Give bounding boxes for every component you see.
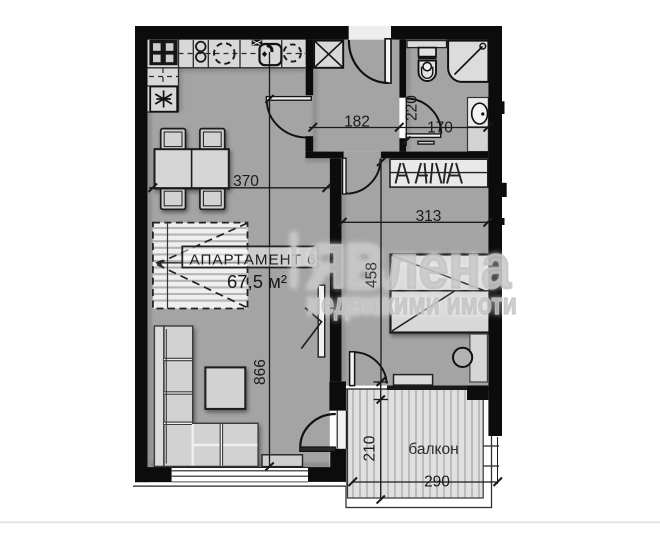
svg-text:290: 290 [424,474,450,491]
svg-text:недвижими имоти: недвижими имоти [307,286,517,321]
svg-text:458: 458 [364,262,381,288]
svg-text:370: 370 [233,173,259,190]
svg-text:210: 210 [362,435,379,461]
svg-text:балкон: балкон [408,441,458,458]
svg-text:313: 313 [416,208,442,225]
svg-text:182: 182 [344,114,370,131]
svg-text:220: 220 [404,95,421,121]
svg-text:866: 866 [252,359,269,385]
svg-text:67,5 м²: 67,5 м² [227,271,287,292]
svg-text:170: 170 [427,120,453,137]
